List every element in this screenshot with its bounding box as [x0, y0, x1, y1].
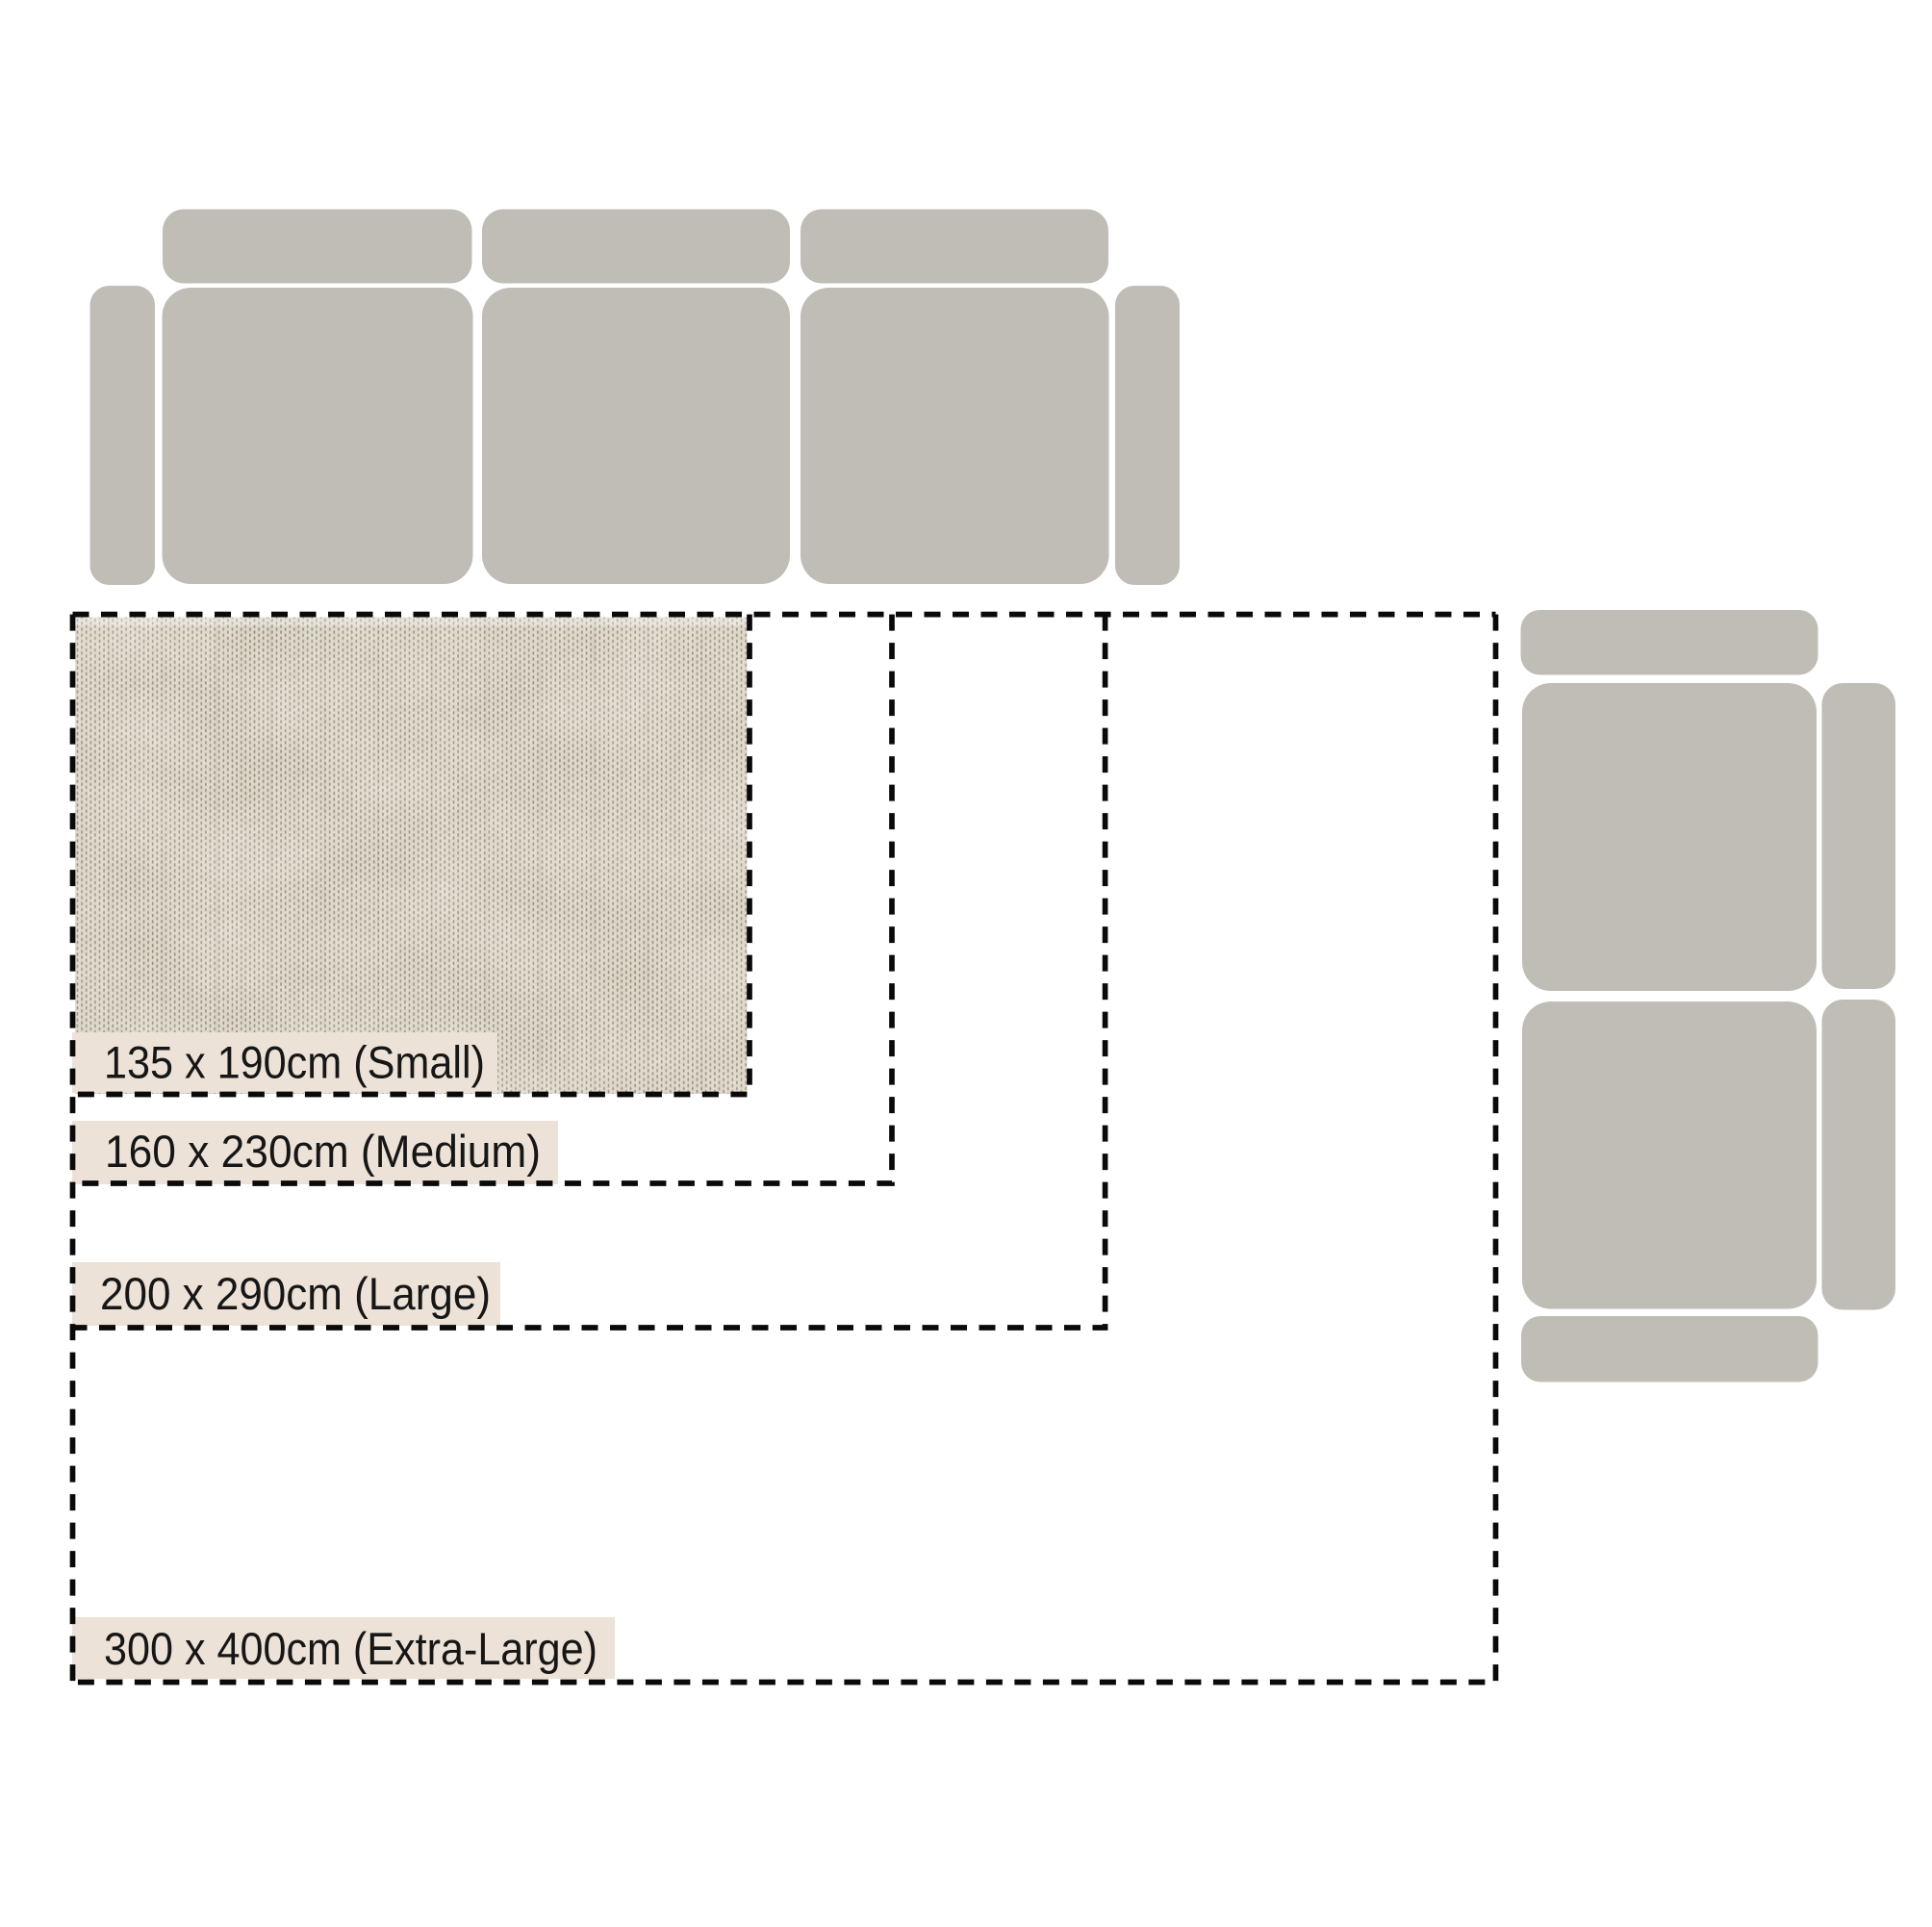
svg-text:160 x 230cm (Medium): 160 x 230cm (Medium) [105, 1126, 541, 1177]
svg-text:300 x 400cm (Extra-Large): 300 x 400cm (Extra-Large) [104, 1623, 597, 1674]
svg-text:135 x 190cm (Small): 135 x 190cm (Small) [104, 1037, 485, 1088]
svg-text:200 x 290cm (Large): 200 x 290cm (Large) [100, 1268, 491, 1319]
